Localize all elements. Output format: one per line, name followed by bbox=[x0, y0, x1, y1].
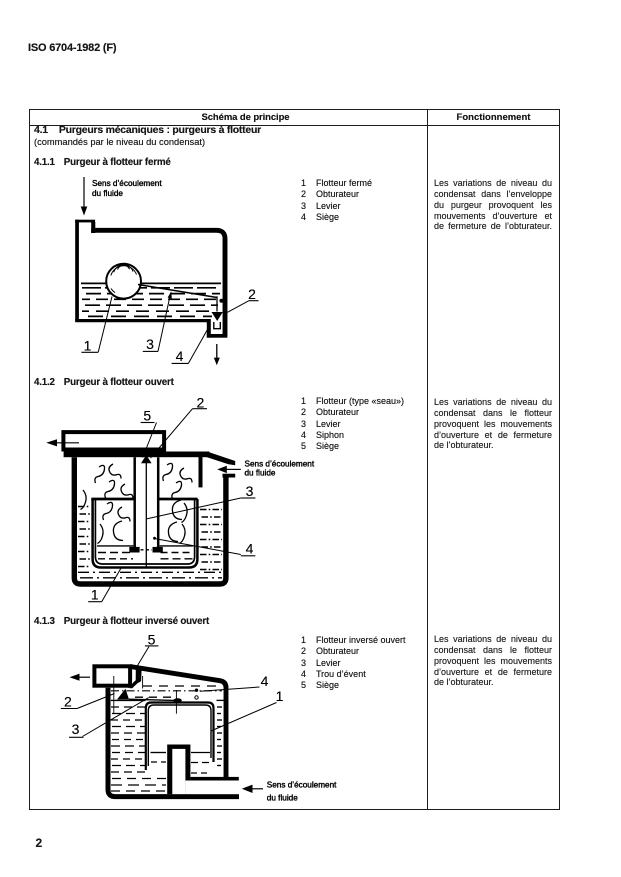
svg-text:5: 5 bbox=[148, 632, 156, 648]
svg-text:2: 2 bbox=[248, 286, 256, 302]
svg-text:3: 3 bbox=[246, 483, 254, 499]
svg-text:4: 4 bbox=[176, 348, 184, 364]
svg-text:3: 3 bbox=[72, 721, 80, 737]
svg-text:5: 5 bbox=[143, 408, 151, 424]
svg-text:du fluide: du fluide bbox=[267, 794, 298, 803]
svg-text:du fluide: du fluide bbox=[245, 469, 276, 478]
svg-text:1: 1 bbox=[276, 688, 284, 704]
svg-text:du fluide: du fluide bbox=[92, 189, 123, 198]
svg-text:Sens d’écoulement: Sens d’écoulement bbox=[245, 460, 315, 469]
svg-text:4: 4 bbox=[261, 673, 269, 689]
svg-text:2: 2 bbox=[197, 395, 205, 410]
svg-text:1: 1 bbox=[84, 338, 92, 354]
svg-text:4: 4 bbox=[246, 541, 254, 557]
svg-text:2: 2 bbox=[64, 693, 72, 709]
svg-text:Sens d’écoulement: Sens d’écoulement bbox=[92, 179, 162, 188]
svg-text:1: 1 bbox=[91, 587, 99, 603]
svg-text:3: 3 bbox=[146, 336, 154, 352]
svg-text:Sens d’écoulement: Sens d’écoulement bbox=[267, 781, 337, 790]
